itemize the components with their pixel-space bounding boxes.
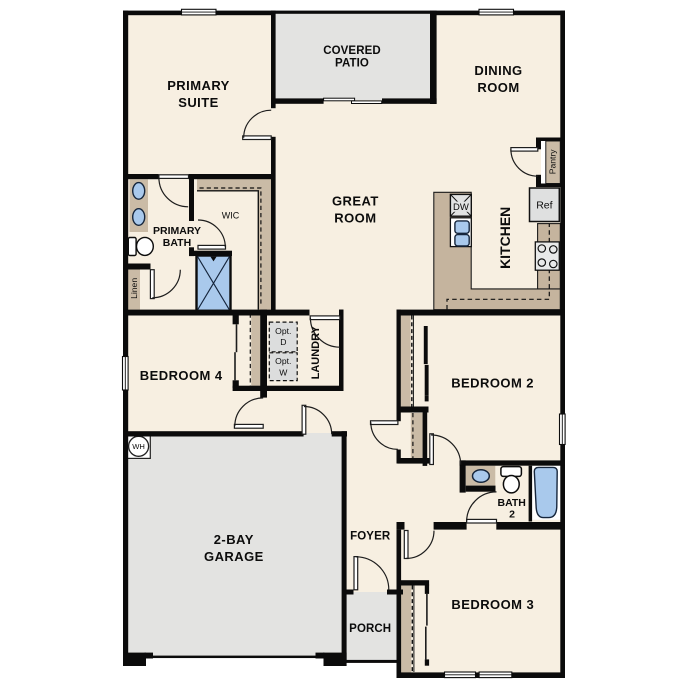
- svg-text:WIC: WIC: [222, 210, 240, 220]
- svg-text:D: D: [280, 337, 286, 347]
- svg-text:Linen: Linen: [129, 278, 139, 299]
- svg-text:COVERED: COVERED: [323, 45, 381, 57]
- svg-text:Pantry: Pantry: [548, 149, 558, 175]
- svg-text:WH: WH: [132, 442, 145, 451]
- svg-text:LAUNDRY: LAUNDRY: [310, 325, 322, 379]
- svg-text:Opt.: Opt.: [275, 356, 291, 366]
- svg-text:BATH: BATH: [498, 497, 526, 509]
- svg-text:FOYER: FOYER: [350, 530, 391, 542]
- svg-text:PRIMARY: PRIMARY: [153, 225, 201, 237]
- svg-text:BEDROOM 4: BEDROOM 4: [140, 368, 223, 383]
- svg-text:DW: DW: [453, 202, 469, 213]
- svg-text:PATIO: PATIO: [335, 58, 369, 70]
- svg-text:BEDROOM 3: BEDROOM 3: [451, 597, 534, 612]
- svg-text:W: W: [279, 367, 288, 377]
- svg-text:BATH: BATH: [163, 237, 191, 249]
- svg-text:Ref: Ref: [536, 199, 552, 211]
- svg-text:DINING: DINING: [474, 63, 522, 78]
- svg-text:2: 2: [509, 509, 515, 521]
- svg-text:GREAT: GREAT: [332, 194, 379, 209]
- svg-text:PORCH: PORCH: [349, 623, 391, 635]
- svg-text:SUITE: SUITE: [178, 95, 219, 110]
- svg-text:ROOM: ROOM: [334, 211, 376, 226]
- svg-text:KITCHEN: KITCHEN: [497, 207, 513, 269]
- svg-text:ROOM: ROOM: [477, 80, 519, 95]
- svg-text:BEDROOM 2: BEDROOM 2: [451, 376, 534, 391]
- svg-text:GARAGE: GARAGE: [204, 549, 264, 564]
- svg-text:2-BAY: 2-BAY: [214, 532, 254, 547]
- svg-text:PRIMARY: PRIMARY: [167, 78, 230, 93]
- svg-text:Opt.: Opt.: [275, 326, 291, 336]
